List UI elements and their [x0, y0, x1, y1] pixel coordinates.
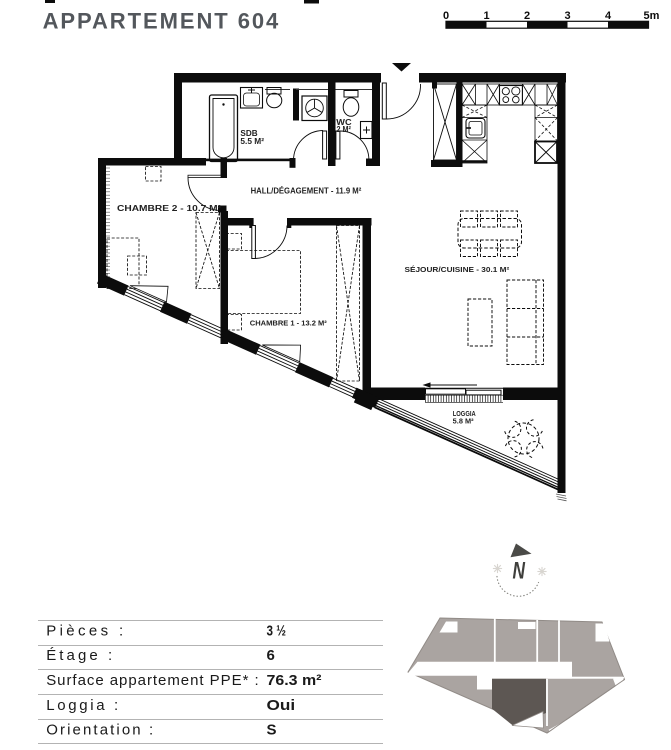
svg-text:3: 3	[564, 10, 570, 22]
svg-text:CHAMBRE 1 - 13.2 M²: CHAMBRE 1 - 13.2 M²	[250, 318, 328, 327]
svg-text:4: 4	[605, 10, 612, 22]
svg-text:5.8 M²: 5.8 M²	[453, 419, 475, 426]
svg-text:Oui: Oui	[267, 697, 296, 714]
svg-text:5.5 M²: 5.5 M²	[240, 136, 264, 146]
svg-text:76.3 m²: 76.3 m²	[267, 672, 322, 689]
svg-text:S: S	[267, 722, 277, 739]
svg-text:0: 0	[443, 10, 449, 22]
svg-text:Orientation :: Orientation :	[46, 722, 153, 739]
svg-text:2 M²: 2 M²	[337, 124, 352, 134]
svg-text:1: 1	[483, 10, 489, 22]
svg-text:CHAMBRE 2 - 10.7 M²: CHAMBRE 2 - 10.7 M²	[117, 203, 221, 213]
svg-text:N: N	[513, 558, 526, 584]
svg-text:HALL/DÉGAGEMENT - 11.9 M²: HALL/DÉGAGEMENT - 11.9 M²	[251, 186, 362, 196]
svg-text:SÉJOUR/CUISINE - 30.1 M²: SÉJOUR/CUISINE - 30.1 M²	[405, 265, 510, 274]
svg-text:3 ½: 3 ½	[267, 622, 287, 639]
svg-text:5m: 5m	[644, 10, 660, 22]
svg-text:Étage :: Étage :	[46, 647, 112, 664]
svg-text:Loggia :: Loggia :	[46, 697, 118, 714]
svg-text:LOGGIA: LOGGIA	[453, 411, 476, 418]
svg-text:6: 6	[267, 647, 275, 664]
svg-text:APPARTEMENT 604: APPARTEMENT 604	[43, 9, 279, 34]
svg-text:Surface appartement PPE* :: Surface appartement PPE* :	[46, 672, 259, 689]
svg-text:2: 2	[524, 10, 530, 22]
